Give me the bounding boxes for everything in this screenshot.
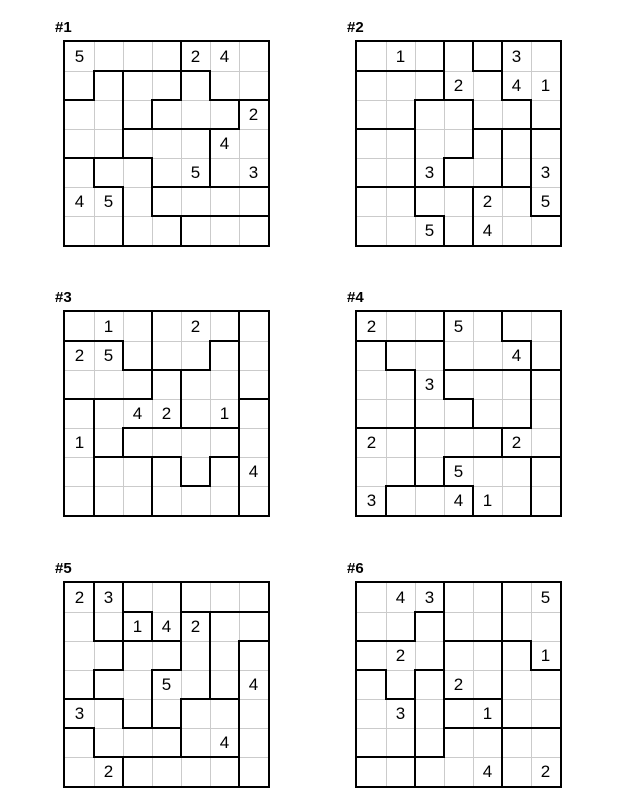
grid-cell[interactable] xyxy=(473,728,502,757)
grid-cell[interactable] xyxy=(473,670,502,699)
grid-cell[interactable] xyxy=(65,312,94,341)
grid-cell[interactable] xyxy=(65,757,94,786)
grid-cell[interactable] xyxy=(531,100,560,129)
grid-cell[interactable] xyxy=(152,699,181,728)
grid-cell[interactable] xyxy=(123,42,152,71)
grid-cell[interactable] xyxy=(181,728,210,757)
grid-cell[interactable] xyxy=(94,728,123,757)
grid-cell[interactable] xyxy=(181,583,210,612)
grid-cell[interactable] xyxy=(444,612,473,641)
grid-cell[interactable] xyxy=(444,100,473,129)
grid-cell[interactable] xyxy=(386,486,415,515)
grid-cell[interactable] xyxy=(531,670,560,699)
grid-cell[interactable] xyxy=(357,757,386,786)
grid-cell[interactable]: 2 xyxy=(181,42,210,71)
grid-cell[interactable]: 1 xyxy=(65,428,94,457)
grid-cell[interactable] xyxy=(123,341,152,370)
grid-cell[interactable] xyxy=(210,187,239,216)
grid-cell[interactable] xyxy=(123,71,152,100)
grid-cell[interactable] xyxy=(123,100,152,129)
grid-cell[interactable] xyxy=(502,699,531,728)
grid-cell[interactable] xyxy=(210,216,239,245)
grid-cell[interactable] xyxy=(415,341,444,370)
grid-cell[interactable] xyxy=(415,457,444,486)
grid-cell[interactable] xyxy=(152,100,181,129)
grid-cell[interactable]: 2 xyxy=(444,670,473,699)
grid-cell[interactable] xyxy=(210,583,239,612)
grid-cell[interactable] xyxy=(473,399,502,428)
grid-cell[interactable] xyxy=(473,641,502,670)
grid-cell[interactable] xyxy=(444,187,473,216)
grid-cell[interactable] xyxy=(531,399,560,428)
grid-cell[interactable] xyxy=(181,699,210,728)
grid-cell[interactable] xyxy=(357,42,386,71)
grid-cell[interactable] xyxy=(473,428,502,457)
grid-cell[interactable] xyxy=(502,728,531,757)
grid-cell[interactable] xyxy=(531,370,560,399)
grid-cell[interactable] xyxy=(386,341,415,370)
grid-cell[interactable] xyxy=(386,728,415,757)
grid-cell[interactable] xyxy=(239,42,268,71)
grid-cell[interactable]: 2 xyxy=(531,757,560,786)
grid-cell[interactable] xyxy=(444,42,473,71)
grid-cell[interactable] xyxy=(473,370,502,399)
grid-cell[interactable]: 1 xyxy=(94,312,123,341)
grid-cell[interactable] xyxy=(473,341,502,370)
cage-border-segment xyxy=(414,611,445,613)
grid-cell[interactable] xyxy=(239,728,268,757)
grid-cell[interactable]: 4 xyxy=(65,187,94,216)
grid-cell[interactable] xyxy=(181,428,210,457)
grid-cell[interactable] xyxy=(444,216,473,245)
grid-cell[interactable] xyxy=(386,312,415,341)
grid-cell[interactable] xyxy=(502,457,531,486)
grid-cell[interactable] xyxy=(123,670,152,699)
grid-cell[interactable] xyxy=(210,100,239,129)
grid-cell[interactable] xyxy=(152,187,181,216)
grid-cell[interactable]: 2 xyxy=(357,428,386,457)
grid-cell[interactable] xyxy=(239,71,268,100)
grid-cell[interactable] xyxy=(65,728,94,757)
grid-cell[interactable] xyxy=(239,129,268,158)
grid-cell[interactable]: 2 xyxy=(502,428,531,457)
grid-cell[interactable] xyxy=(123,583,152,612)
grid-cell[interactable] xyxy=(386,457,415,486)
grid-cell[interactable]: 4 xyxy=(444,486,473,515)
grid-cell[interactable]: 4 xyxy=(210,129,239,158)
grid-cell[interactable] xyxy=(415,129,444,158)
grid-cell[interactable] xyxy=(386,216,415,245)
grid-cell[interactable] xyxy=(181,100,210,129)
grid-cell[interactable] xyxy=(531,486,560,515)
grid-cell[interactable] xyxy=(444,699,473,728)
grid-cell[interactable] xyxy=(123,457,152,486)
grid-cell[interactable] xyxy=(239,370,268,399)
grid-cell[interactable] xyxy=(210,641,239,670)
grid-cell[interactable]: 1 xyxy=(531,71,560,100)
grid-cell[interactable]: 1 xyxy=(123,612,152,641)
grid-cell[interactable] xyxy=(210,612,239,641)
grid-cell[interactable] xyxy=(502,612,531,641)
grid-cell[interactable] xyxy=(239,699,268,728)
grid-cell[interactable] xyxy=(386,100,415,129)
grid-cell[interactable] xyxy=(415,42,444,71)
grid-cell[interactable] xyxy=(531,129,560,158)
grid-cell[interactable] xyxy=(502,583,531,612)
grid-cell[interactable] xyxy=(152,71,181,100)
grid-cell[interactable] xyxy=(210,71,239,100)
grid-cell[interactable]: 5 xyxy=(531,583,560,612)
grid-cell[interactable] xyxy=(65,370,94,399)
grid-cell[interactable] xyxy=(152,158,181,187)
grid-cell[interactable]: 2 xyxy=(473,187,502,216)
grid-cell[interactable]: 1 xyxy=(473,486,502,515)
grid-cell[interactable] xyxy=(357,100,386,129)
grid-cell[interactable] xyxy=(531,341,560,370)
grid-cell[interactable] xyxy=(444,341,473,370)
grid-cell[interactable] xyxy=(152,728,181,757)
grid-cell[interactable]: 2 xyxy=(65,583,94,612)
grid-cell[interactable] xyxy=(94,612,123,641)
grid-cell[interactable] xyxy=(152,457,181,486)
grid-cell[interactable] xyxy=(444,129,473,158)
grid-cell[interactable] xyxy=(444,728,473,757)
grid-cell[interactable] xyxy=(65,486,94,515)
grid-cell[interactable] xyxy=(531,216,560,245)
grid-cell[interactable] xyxy=(123,312,152,341)
grid-cell[interactable] xyxy=(94,641,123,670)
grid-cell[interactable]: 4 xyxy=(502,71,531,100)
grid-cell[interactable]: 4 xyxy=(473,216,502,245)
grid-cell[interactable] xyxy=(415,670,444,699)
grid-cell[interactable] xyxy=(210,158,239,187)
grid-cell[interactable]: 5 xyxy=(65,42,94,71)
grid-cell[interactable] xyxy=(210,486,239,515)
grid-cell[interactable] xyxy=(65,216,94,245)
grid-cell[interactable] xyxy=(415,728,444,757)
grid-cell[interactable]: 5 xyxy=(444,457,473,486)
grid-cell[interactable]: 3 xyxy=(386,699,415,728)
grid-cell[interactable] xyxy=(65,100,94,129)
grid-cell[interactable] xyxy=(531,612,560,641)
grid-cell[interactable] xyxy=(415,428,444,457)
grid-cell[interactable]: 3 xyxy=(415,583,444,612)
grid-cell[interactable] xyxy=(210,370,239,399)
grid-cell[interactable]: 4 xyxy=(123,399,152,428)
grid-cell[interactable]: 5 xyxy=(94,341,123,370)
grid-cell[interactable] xyxy=(65,129,94,158)
grid-cell[interactable] xyxy=(239,399,268,428)
grid-cell[interactable] xyxy=(181,341,210,370)
grid-cell[interactable] xyxy=(357,641,386,670)
grid-cell[interactable] xyxy=(357,370,386,399)
grid-cell[interactable]: 3 xyxy=(239,158,268,187)
grid-cell[interactable]: 4 xyxy=(152,612,181,641)
grid-cell[interactable]: 4 xyxy=(473,757,502,786)
grid-cell[interactable] xyxy=(415,641,444,670)
grid-cell[interactable]: 2 xyxy=(152,399,181,428)
grid-cell[interactable]: 5 xyxy=(531,187,560,216)
grid-cell[interactable] xyxy=(502,370,531,399)
grid-cell[interactable]: 2 xyxy=(65,341,94,370)
grid-cell[interactable] xyxy=(239,187,268,216)
grid-cell[interactable]: 4 xyxy=(210,728,239,757)
grid-cell[interactable] xyxy=(239,341,268,370)
grid-cell[interactable] xyxy=(152,757,181,786)
grid-cell[interactable] xyxy=(357,216,386,245)
grid-cell[interactable] xyxy=(210,757,239,786)
grid-cell[interactable] xyxy=(94,71,123,100)
grid-cell[interactable] xyxy=(181,129,210,158)
grid-cell[interactable]: 2 xyxy=(444,71,473,100)
grid-cell[interactable] xyxy=(152,370,181,399)
grid-cell[interactable] xyxy=(357,583,386,612)
grid-cell[interactable] xyxy=(357,670,386,699)
grid-cell[interactable]: 2 xyxy=(94,757,123,786)
grid-cell[interactable]: 4 xyxy=(386,583,415,612)
grid-cell[interactable] xyxy=(65,399,94,428)
grid-cell[interactable] xyxy=(386,670,415,699)
grid-cell[interactable] xyxy=(531,428,560,457)
grid-cell[interactable] xyxy=(94,158,123,187)
grid-cell[interactable] xyxy=(94,100,123,129)
cage-border-segment xyxy=(122,128,124,159)
grid-cell[interactable] xyxy=(444,641,473,670)
grid-cell[interactable]: 5 xyxy=(94,187,123,216)
grid-cell[interactable] xyxy=(65,612,94,641)
grid-cell[interactable] xyxy=(123,158,152,187)
grid-cell[interactable] xyxy=(210,341,239,370)
grid-cell[interactable] xyxy=(181,641,210,670)
grid-cell[interactable] xyxy=(152,312,181,341)
grid-cell[interactable] xyxy=(473,583,502,612)
grid-cell[interactable]: 2 xyxy=(181,312,210,341)
grid-cell[interactable] xyxy=(123,728,152,757)
grid-cell[interactable]: 1 xyxy=(531,641,560,670)
grid-cell[interactable] xyxy=(65,457,94,486)
grid-cell[interactable] xyxy=(357,457,386,486)
grid-cell[interactable]: 3 xyxy=(94,583,123,612)
grid-cell[interactable] xyxy=(152,129,181,158)
grid-cell[interactable] xyxy=(152,216,181,245)
grid-cell[interactable] xyxy=(415,399,444,428)
grid-cell[interactable] xyxy=(502,312,531,341)
grid-cell[interactable] xyxy=(357,341,386,370)
grid-cell[interactable] xyxy=(415,757,444,786)
grid-cell[interactable] xyxy=(94,370,123,399)
grid-cell[interactable] xyxy=(357,399,386,428)
grid-cell[interactable] xyxy=(152,641,181,670)
grid-cell[interactable] xyxy=(386,158,415,187)
grid-cell[interactable] xyxy=(94,486,123,515)
grid-cell[interactable] xyxy=(473,457,502,486)
grid-cell[interactable] xyxy=(444,399,473,428)
grid-cell[interactable]: 3 xyxy=(531,158,560,187)
grid-cell[interactable] xyxy=(415,187,444,216)
grid-cell[interactable]: 1 xyxy=(210,399,239,428)
grid-cell[interactable]: 5 xyxy=(415,216,444,245)
grid-cell[interactable] xyxy=(415,699,444,728)
grid-cell[interactable] xyxy=(210,428,239,457)
grid-cell[interactable] xyxy=(357,728,386,757)
grid-cell[interactable] xyxy=(94,699,123,728)
grid-cell[interactable] xyxy=(502,187,531,216)
grid-cell[interactable] xyxy=(531,699,560,728)
grid-cell[interactable] xyxy=(357,129,386,158)
grid-cell[interactable]: 5 xyxy=(444,312,473,341)
grid-cell[interactable] xyxy=(502,216,531,245)
grid-cell[interactable]: 2 xyxy=(386,641,415,670)
grid-cell[interactable] xyxy=(386,612,415,641)
grid-cell[interactable] xyxy=(181,71,210,100)
grid-cell[interactable] xyxy=(415,486,444,515)
grid-cell[interactable] xyxy=(152,42,181,71)
grid-cell[interactable] xyxy=(123,699,152,728)
grid-cell[interactable] xyxy=(357,158,386,187)
grid-cell[interactable] xyxy=(502,100,531,129)
grid-cell[interactable] xyxy=(415,100,444,129)
grid-cell[interactable] xyxy=(181,216,210,245)
grid-cell[interactable] xyxy=(473,312,502,341)
grid-cell[interactable] xyxy=(357,699,386,728)
grid-cell[interactable] xyxy=(473,42,502,71)
grid-cell[interactable] xyxy=(181,187,210,216)
grid-cell[interactable] xyxy=(152,341,181,370)
grid-cell[interactable] xyxy=(210,312,239,341)
grid-cell[interactable] xyxy=(123,187,152,216)
grid-cell[interactable] xyxy=(502,757,531,786)
cage-border-segment xyxy=(64,727,95,729)
grid-cell[interactable] xyxy=(415,71,444,100)
grid-cell[interactable] xyxy=(123,641,152,670)
grid-cell[interactable] xyxy=(123,129,152,158)
grid-cell[interactable] xyxy=(181,757,210,786)
grid-cell[interactable] xyxy=(531,42,560,71)
grid-cell[interactable] xyxy=(65,641,94,670)
grid-cell[interactable]: 5 xyxy=(181,158,210,187)
grid-cell[interactable]: 4 xyxy=(502,341,531,370)
grid-cell[interactable]: 3 xyxy=(357,486,386,515)
grid-cell[interactable] xyxy=(502,486,531,515)
grid-cell[interactable] xyxy=(123,216,152,245)
grid-cell[interactable]: 1 xyxy=(386,42,415,71)
grid-cell[interactable] xyxy=(152,428,181,457)
grid-cell[interactable] xyxy=(239,428,268,457)
grid-cell[interactable] xyxy=(386,187,415,216)
grid-cell[interactable] xyxy=(94,399,123,428)
grid-cell[interactable] xyxy=(502,399,531,428)
grid-cell[interactable] xyxy=(444,757,473,786)
grid-cell[interactable] xyxy=(123,486,152,515)
grid-cell[interactable] xyxy=(152,486,181,515)
grid-cell[interactable] xyxy=(502,129,531,158)
grid-cell[interactable] xyxy=(444,583,473,612)
grid-cell[interactable]: 3 xyxy=(502,42,531,71)
grid-cell[interactable]: 3 xyxy=(65,699,94,728)
grid-cell[interactable] xyxy=(181,457,210,486)
grid-cell[interactable] xyxy=(444,370,473,399)
grid-cell[interactable] xyxy=(502,670,531,699)
grid-cell[interactable] xyxy=(502,641,531,670)
grid-cell[interactable] xyxy=(357,612,386,641)
grid-cell[interactable] xyxy=(239,312,268,341)
grid-cell[interactable]: 5 xyxy=(152,670,181,699)
cage-border-segment xyxy=(385,669,387,700)
grid-cell[interactable] xyxy=(473,129,502,158)
grid-cell[interactable] xyxy=(94,670,123,699)
grid-cell[interactable] xyxy=(473,158,502,187)
grid-cell[interactable] xyxy=(386,428,415,457)
grid-cell[interactable] xyxy=(473,100,502,129)
grid-cell[interactable] xyxy=(415,312,444,341)
grid-cell[interactable] xyxy=(502,158,531,187)
grid-cell[interactable]: 1 xyxy=(473,699,502,728)
grid-cell[interactable] xyxy=(123,757,152,786)
grid-cell[interactable] xyxy=(181,670,210,699)
grid-cell[interactable] xyxy=(65,71,94,100)
grid-cell[interactable] xyxy=(386,399,415,428)
grid-cell[interactable] xyxy=(94,428,123,457)
grid-cell[interactable] xyxy=(239,757,268,786)
grid-cell[interactable] xyxy=(239,216,268,245)
grid-cell[interactable]: 4 xyxy=(239,457,268,486)
grid-cell[interactable] xyxy=(531,312,560,341)
grid-cell[interactable] xyxy=(65,670,94,699)
grid-cell[interactable]: 4 xyxy=(210,42,239,71)
grid-cell[interactable]: 2 xyxy=(181,612,210,641)
grid-cell[interactable] xyxy=(386,71,415,100)
grid-cell[interactable]: 3 xyxy=(415,158,444,187)
grid-cell[interactable] xyxy=(473,71,502,100)
grid-cell[interactable] xyxy=(239,486,268,515)
grid-cell[interactable] xyxy=(152,583,181,612)
grid-cell[interactable] xyxy=(386,370,415,399)
grid-cell[interactable] xyxy=(94,42,123,71)
grid-cell[interactable] xyxy=(386,129,415,158)
grid-cell[interactable] xyxy=(531,457,560,486)
grid-cell[interactable] xyxy=(94,457,123,486)
grid-cell[interactable]: 2 xyxy=(357,312,386,341)
grid-cell[interactable] xyxy=(181,486,210,515)
grid-cell[interactable] xyxy=(181,370,210,399)
grid-cell[interactable] xyxy=(473,612,502,641)
grid-cell[interactable] xyxy=(65,158,94,187)
grid-cell[interactable] xyxy=(386,757,415,786)
grid-cell[interactable] xyxy=(415,612,444,641)
grid-cell[interactable] xyxy=(239,612,268,641)
grid-cell[interactable] xyxy=(123,370,152,399)
grid-cell[interactable]: 2 xyxy=(239,100,268,129)
grid-cell[interactable] xyxy=(444,158,473,187)
grid-cell[interactable] xyxy=(531,728,560,757)
grid-cell[interactable] xyxy=(239,641,268,670)
grid-cell[interactable] xyxy=(123,428,152,457)
grid-cell[interactable] xyxy=(444,428,473,457)
grid-cell[interactable] xyxy=(94,216,123,245)
cage-border-segment xyxy=(180,698,182,729)
grid-cell[interactable]: 4 xyxy=(239,670,268,699)
grid-cell[interactable] xyxy=(239,583,268,612)
grid-cell[interactable] xyxy=(357,187,386,216)
grid-cell[interactable] xyxy=(94,129,123,158)
grid-cell[interactable] xyxy=(357,71,386,100)
grid-cell[interactable]: 3 xyxy=(415,370,444,399)
grid-cell[interactable] xyxy=(210,670,239,699)
cage-border-segment xyxy=(151,669,182,671)
grid-cell[interactable] xyxy=(210,699,239,728)
grid-cell[interactable] xyxy=(181,399,210,428)
grid-cell[interactable] xyxy=(210,457,239,486)
